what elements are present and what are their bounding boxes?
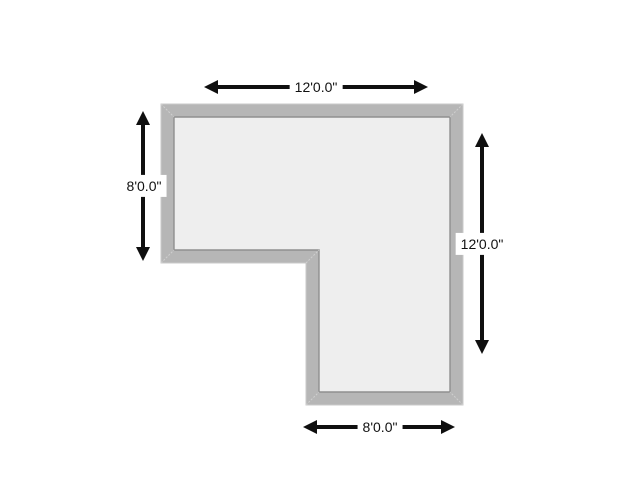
dimension-label-top: 12'0.0"	[290, 76, 343, 98]
floor-plan-canvas: 12'0.0" 8'0.0" 12'0.0" 8'0.0"	[0, 0, 637, 501]
dimension-label-right: 12'0.0"	[456, 233, 509, 255]
dimension-label-left: 8'0.0"	[122, 175, 167, 197]
dimension-label-bottom: 8'0.0"	[358, 416, 403, 438]
